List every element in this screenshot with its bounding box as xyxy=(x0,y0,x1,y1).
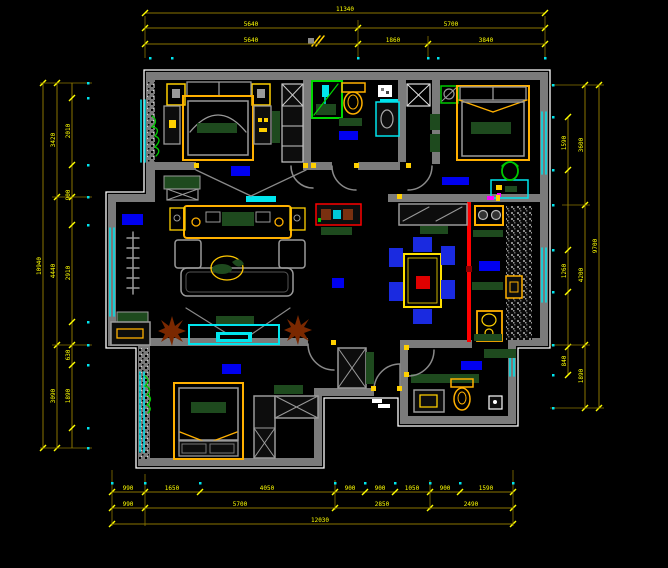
wall-left-bay xyxy=(108,202,116,342)
dim-label: 4200 xyxy=(578,267,585,282)
wall-hall-bottom xyxy=(314,388,374,396)
stove-burner-1 xyxy=(479,211,488,220)
dim-ext-dot xyxy=(144,482,147,485)
bath1-basin-cabinet xyxy=(376,102,399,136)
dim-ext-dot xyxy=(544,57,547,60)
hinge-master-v2 xyxy=(303,163,308,168)
master-shelf-green xyxy=(272,111,280,143)
dining-chair-r1 xyxy=(441,246,455,265)
hinge-bed3 xyxy=(331,340,336,345)
console-deco-4 xyxy=(318,218,321,222)
hinge-master-hall xyxy=(311,163,316,168)
hinge-entry-b xyxy=(371,386,376,391)
dim-label: 1590 xyxy=(561,135,568,150)
table-plant-leaves xyxy=(212,264,232,274)
dim-ext-dot xyxy=(87,82,90,85)
dim-ext-dot xyxy=(87,321,90,324)
glass-transom xyxy=(246,196,276,202)
dim-label: 1860 xyxy=(386,37,401,44)
shoe-cabinet xyxy=(399,204,467,225)
bed2-pillow xyxy=(471,122,511,134)
wall-left-step xyxy=(108,194,155,202)
dim-ext-dot xyxy=(87,447,90,450)
dim-label: 5640 xyxy=(244,37,259,44)
kitchen-door-handle xyxy=(466,266,472,272)
dim-label: 2010 xyxy=(65,123,72,138)
dim-label: 2490 xyxy=(464,501,479,508)
dim-label: 12030 xyxy=(311,517,329,524)
master-dresser-left-knob xyxy=(169,120,176,128)
wall-hatch-left-upper xyxy=(147,82,155,162)
dim-label: 1650 xyxy=(165,485,180,492)
dim-ext-dot xyxy=(334,482,337,485)
kitchen-counter-2 xyxy=(472,282,503,290)
dim-ext-dot xyxy=(111,482,114,485)
kitchen-counter-hatch xyxy=(506,206,532,340)
floor-drain-dot xyxy=(493,400,497,404)
entry-marker-1 xyxy=(372,399,382,403)
dim-label: 1890 xyxy=(65,388,72,403)
desk-item-green xyxy=(505,186,517,192)
sofa-cushion-green xyxy=(222,212,254,226)
master-bench xyxy=(164,176,200,189)
bed3-wardrobe-v xyxy=(254,396,275,458)
nightstand-right-lamp xyxy=(257,89,265,98)
dim-break-box xyxy=(308,38,314,44)
cistern-dot-2 xyxy=(386,91,389,94)
kitchen-counter-1 xyxy=(473,230,503,237)
tv-screen-inner xyxy=(220,335,248,339)
dim-ext-dot xyxy=(87,344,90,347)
dim-ext-dot xyxy=(394,482,397,485)
dim-label: 2850 xyxy=(375,501,390,508)
dim-label: 10940 xyxy=(36,257,43,275)
console-deco-1 xyxy=(321,209,331,220)
master-bed-pillow xyxy=(197,123,237,133)
dim-ext-dot xyxy=(171,57,174,60)
dim-label: 2910 xyxy=(65,265,72,280)
dim-ext-dot xyxy=(552,249,555,252)
dim-ext-dot xyxy=(87,196,90,199)
dim-ext-dot xyxy=(552,116,555,119)
hinge-bath2-a xyxy=(404,345,409,350)
gas-meter-magenta xyxy=(487,196,494,200)
dining-chair-l2 xyxy=(389,282,403,301)
dim-ext-dot xyxy=(87,97,90,100)
dim-label: 4440 xyxy=(50,263,57,278)
bed3-pillow xyxy=(191,402,226,413)
bed2-closet-a xyxy=(430,114,440,130)
dim-ext-dot xyxy=(552,291,555,294)
master-chest-knob-3 xyxy=(259,128,267,132)
dim-ext-dot xyxy=(87,427,90,430)
bed3-footboard xyxy=(179,441,238,456)
living-rug xyxy=(216,316,254,325)
dim-ext-dot xyxy=(87,164,90,167)
dining-chair-r2 xyxy=(441,280,455,299)
hinge-bed2 xyxy=(406,163,411,168)
dim-ext-dot xyxy=(552,407,555,410)
dining-centerpiece xyxy=(416,276,430,289)
room-label-bath2 xyxy=(461,361,482,370)
dim-ext-dot xyxy=(87,224,90,227)
dim-ext-dot xyxy=(552,169,555,172)
dim-ext-dot xyxy=(459,482,462,485)
living-bench-green xyxy=(117,312,148,322)
wall-hall-mid-b xyxy=(358,162,400,170)
cistern-dot-1 xyxy=(381,88,384,91)
dim-label: 1890 xyxy=(578,368,585,383)
dim-ext-dot xyxy=(149,57,152,60)
dining-chair-bottom xyxy=(413,309,432,324)
desk-item-yellow xyxy=(496,185,502,190)
shower-head xyxy=(322,85,329,97)
dim-label: 1260 xyxy=(561,263,568,278)
bath2-basin-cabinet xyxy=(414,390,444,412)
wall-bath2-bottom xyxy=(400,416,516,424)
bed2-closet-b xyxy=(430,134,440,152)
nightstand-left-lamp xyxy=(172,89,180,98)
kitchen-appliance xyxy=(506,276,522,298)
console-deco-2 xyxy=(333,210,341,219)
kitchen-counter-3 xyxy=(474,334,502,341)
gas-meter-tick xyxy=(496,195,500,201)
entry-rug xyxy=(321,227,352,235)
dim-ext-dot xyxy=(87,364,90,367)
dim-label: 9700 xyxy=(592,238,599,253)
hall-cabinet-green xyxy=(366,352,374,384)
dim-label: 1590 xyxy=(479,485,494,492)
toilet1-cistern xyxy=(378,85,392,97)
dim-label: 11340 xyxy=(336,6,354,13)
dim-ext-dot xyxy=(357,57,360,60)
dim-label: 900 xyxy=(440,485,451,492)
dim-label: 900 xyxy=(345,485,356,492)
dim-label: 1050 xyxy=(405,485,420,492)
room-label-master xyxy=(231,166,250,176)
room-label-bath1 xyxy=(339,131,358,140)
dim-ext-dot xyxy=(437,57,440,60)
room-label-hall xyxy=(332,278,344,288)
hinge-dining xyxy=(397,194,402,199)
wall-top xyxy=(146,72,548,80)
dim-ext-dot xyxy=(429,482,432,485)
dim-ext-dot xyxy=(199,482,202,485)
room-label-bed3 xyxy=(222,364,241,374)
wall-master-right xyxy=(303,80,311,170)
dim-label: 990 xyxy=(123,501,134,508)
master-chest-knob-2 xyxy=(264,118,268,122)
dim-label: 900 xyxy=(65,189,72,200)
dim-ext-dot xyxy=(427,57,430,60)
dim-label: 4050 xyxy=(260,485,275,492)
dim-ext-dot xyxy=(552,204,555,207)
room-label-bed2 xyxy=(442,177,469,185)
dim-label: 3420 xyxy=(50,132,57,147)
entry-marker-2 xyxy=(378,404,390,408)
wall-master-south xyxy=(146,162,196,170)
dim-ext-dot xyxy=(552,374,555,377)
dim-label: 3840 xyxy=(479,37,494,44)
stove-burner-2 xyxy=(492,211,501,220)
dim-label: 5700 xyxy=(233,501,248,508)
bed3-shelf-green xyxy=(274,385,303,394)
dim-ext-dot xyxy=(552,344,555,347)
dim-ext-dot xyxy=(512,482,515,485)
dim-label: 5640 xyxy=(244,21,259,28)
wall-right-main xyxy=(540,80,548,338)
dim-label: 3600 xyxy=(578,137,585,152)
dining-chair-top xyxy=(413,237,432,252)
dim-ext-dot xyxy=(364,482,367,485)
dim-label: 900 xyxy=(375,485,386,492)
console-deco-3 xyxy=(343,209,353,220)
dim-ext-dot xyxy=(552,84,555,87)
bath1-shelf xyxy=(339,118,362,126)
dining-chair-l1 xyxy=(389,248,403,267)
floorplan-svg: 1134056405700564018603840990165040509009… xyxy=(0,0,668,568)
master-chest-right xyxy=(254,106,271,144)
room-label-kitchen xyxy=(479,261,500,271)
dim-label: 5700 xyxy=(444,21,459,28)
hinge-bath1 xyxy=(354,163,359,168)
bath2-counter-top xyxy=(484,349,516,358)
dim-label: 3090 xyxy=(50,388,57,403)
wall-bath2-top xyxy=(400,340,472,348)
hinge-master-v1 xyxy=(194,163,199,168)
master-chest-knob-1 xyxy=(258,118,262,122)
cad-floorplan-canvas[interactable]: 1134056405700564018603840990165040509009… xyxy=(0,0,668,568)
hinge-bath2-b xyxy=(404,372,409,377)
room-label-living xyxy=(122,214,143,225)
dim-label: 840 xyxy=(561,355,568,366)
dim-label: 990 xyxy=(123,485,134,492)
hinge-entry-a xyxy=(397,386,402,391)
shoe-cabinet-rug xyxy=(420,226,448,234)
dim-label: 630 xyxy=(65,349,72,360)
